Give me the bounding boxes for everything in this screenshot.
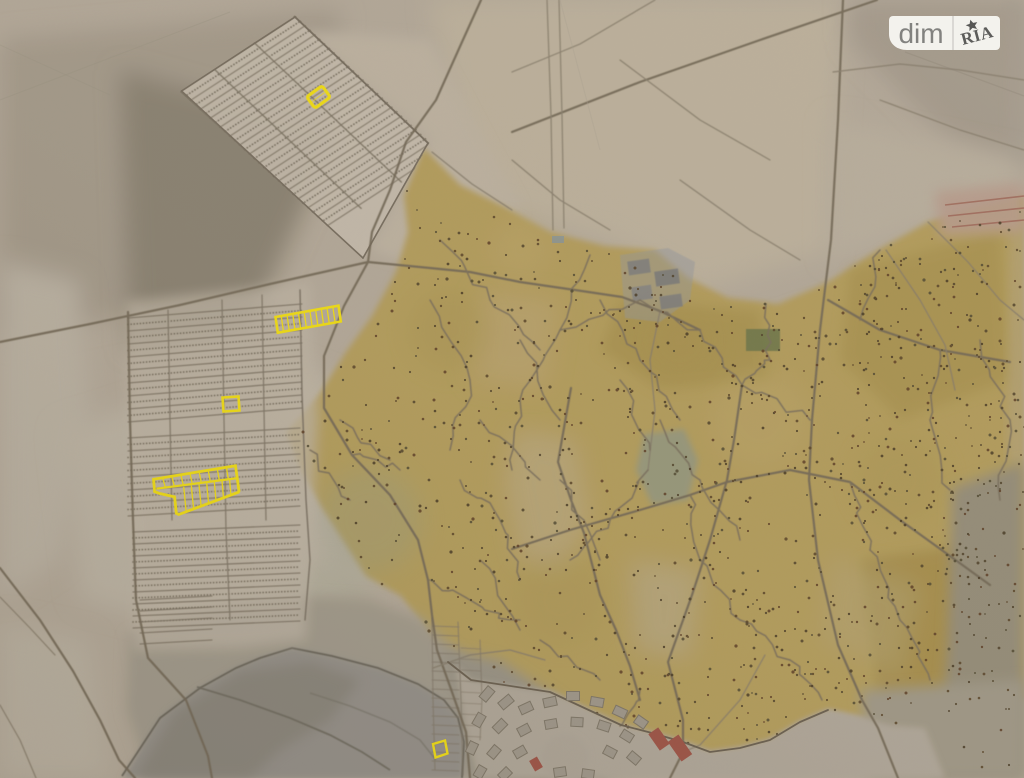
svg-text:dim: dim [898, 18, 943, 49]
